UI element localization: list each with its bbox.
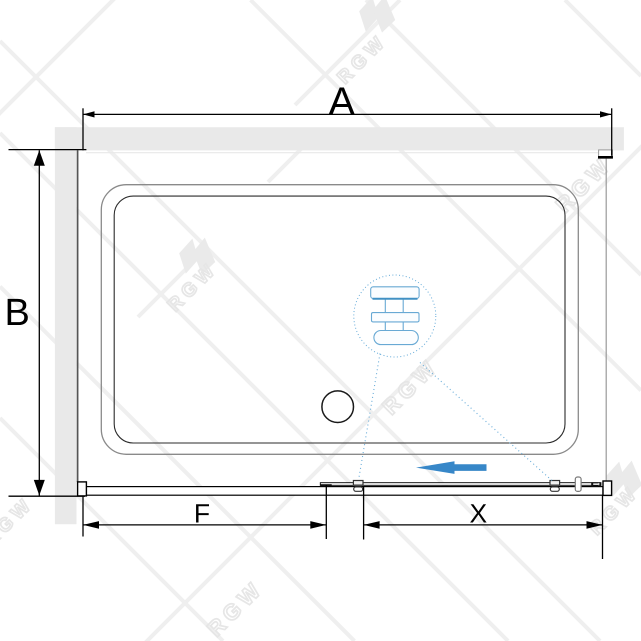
svg-text:X: X [470, 498, 488, 528]
svg-text:F: F [194, 499, 210, 529]
svg-text:B: B [5, 292, 30, 334]
svg-text:A: A [328, 80, 355, 124]
